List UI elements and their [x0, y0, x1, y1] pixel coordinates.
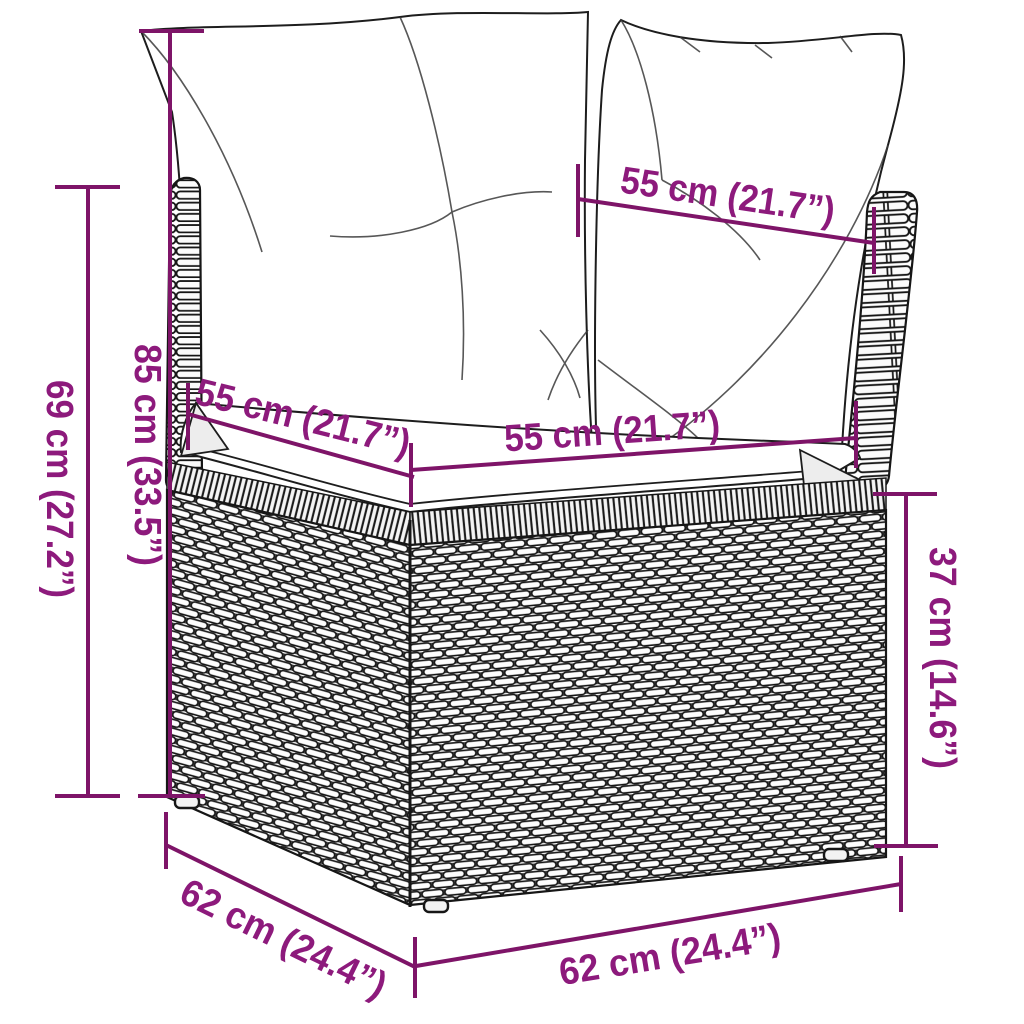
svg-text:85 cm (33.5”): 85 cm (33.5”) [126, 344, 168, 566]
svg-text:37 cm (14.6”): 37 cm (14.6”) [921, 547, 963, 769]
svg-text:69 cm (27.2”): 69 cm (27.2”) [38, 380, 80, 598]
